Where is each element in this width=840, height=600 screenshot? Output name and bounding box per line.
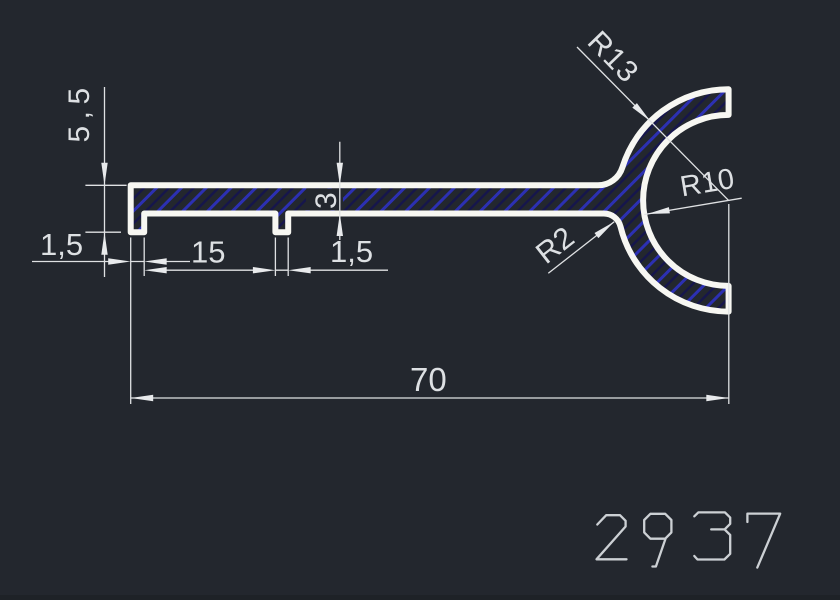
svg-text:70: 70 bbox=[410, 361, 447, 398]
svg-text:5,5: 5,5 bbox=[63, 81, 96, 142]
svg-text:1,5: 1,5 bbox=[330, 234, 373, 269]
svg-text:3: 3 bbox=[310, 192, 343, 209]
svg-text:15: 15 bbox=[191, 235, 225, 270]
svg-text:1,5: 1,5 bbox=[40, 227, 83, 262]
